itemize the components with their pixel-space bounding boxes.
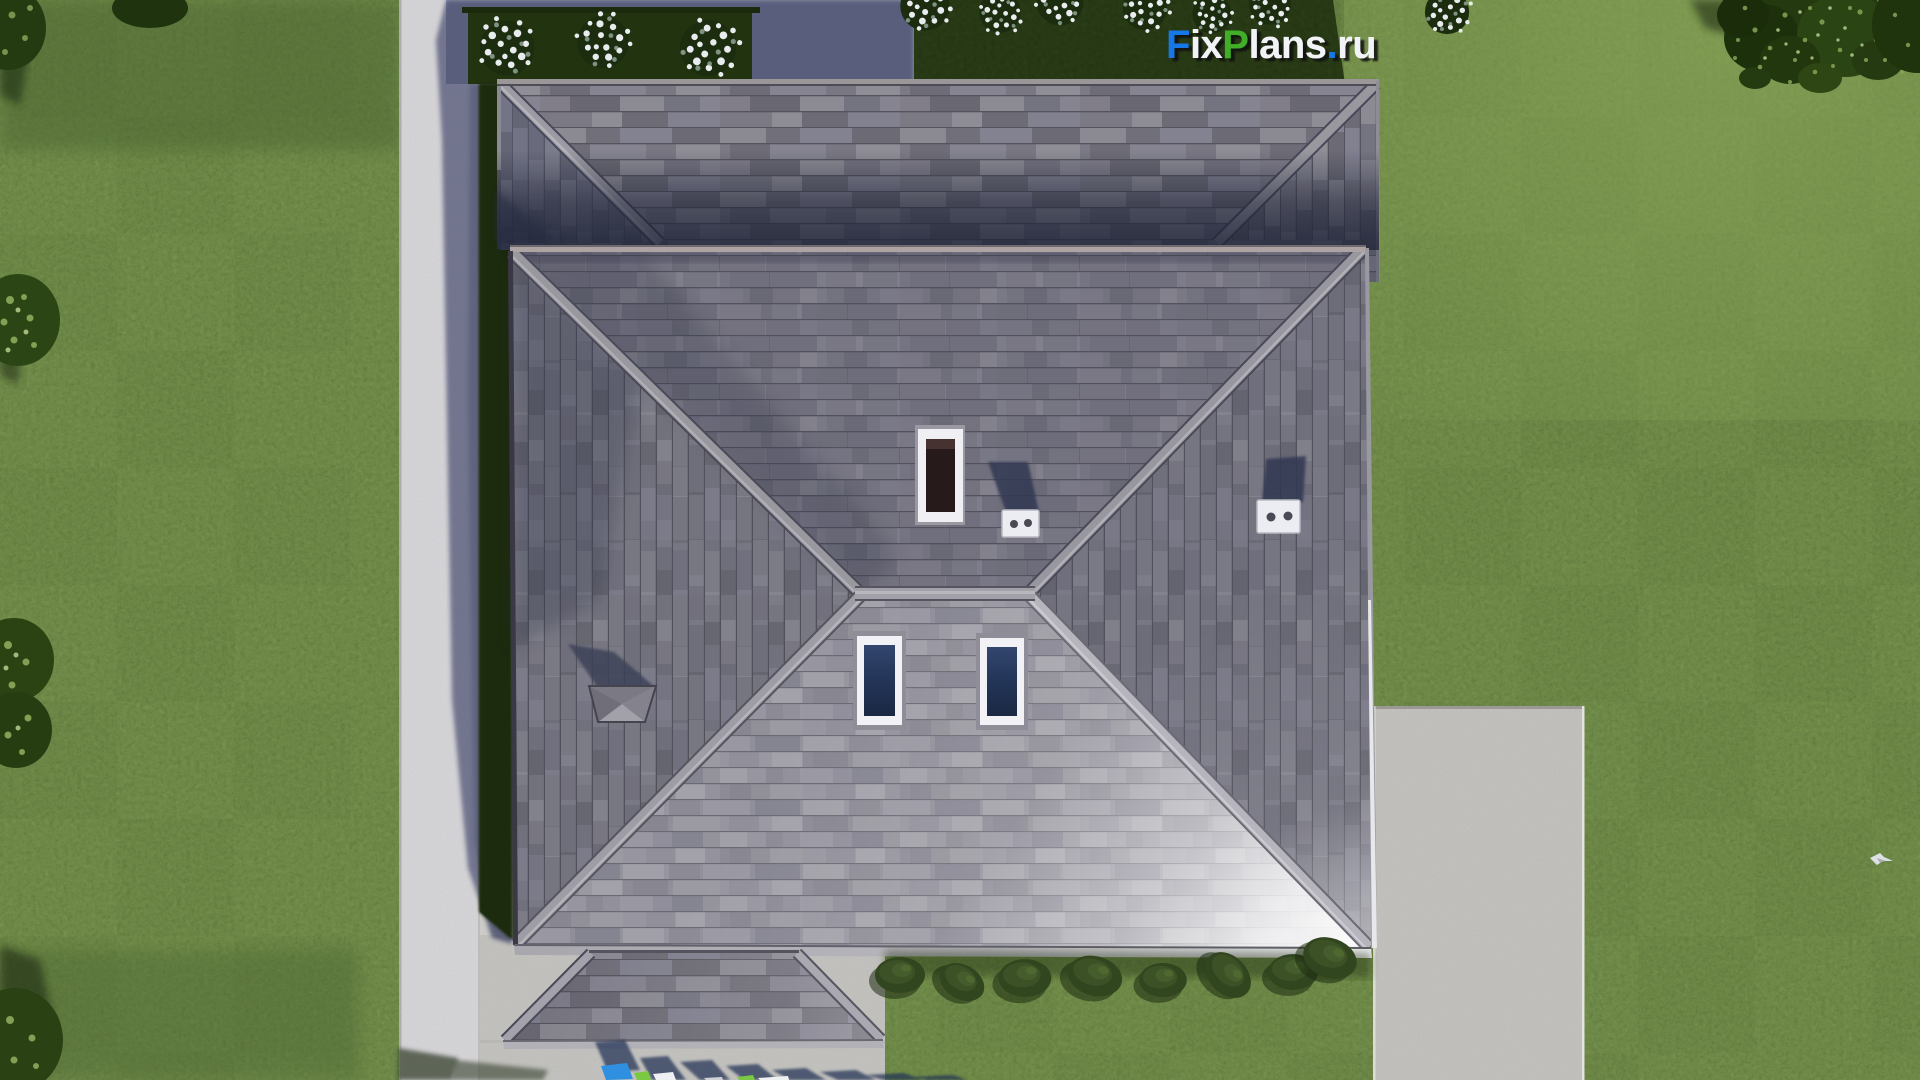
svg-text:FixPlans.ru: FixPlans.ru [1166,23,1376,67]
